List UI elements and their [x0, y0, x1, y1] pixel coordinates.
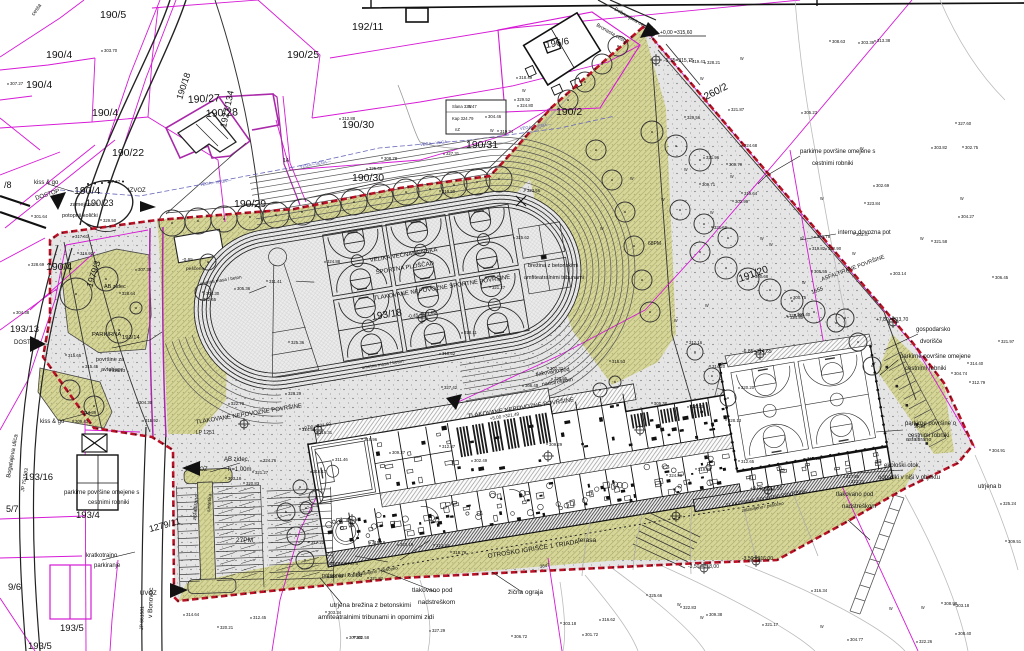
svg-text:190/25: 190/25 — [287, 49, 319, 61]
svg-text:AB zidec: AB zidec — [104, 284, 126, 290]
svg-text:w: w — [700, 615, 704, 621]
svg-text:329.56: 329.56 — [687, 115, 701, 120]
svg-text:315.18: 315.18 — [372, 540, 386, 545]
svg-text:193/14: 193/14 — [122, 335, 141, 341]
svg-text:9/6: 9/6 — [8, 582, 21, 593]
svg-text:312.88: 312.88 — [342, 116, 356, 121]
svg-text:307.38: 307.38 — [138, 267, 152, 272]
svg-text:325.69: 325.69 — [369, 166, 383, 171]
svg-text:321.97: 321.97 — [1001, 339, 1015, 344]
svg-text:303.14: 303.14 — [893, 271, 907, 276]
svg-text:319.34: 319.34 — [500, 129, 514, 134]
svg-text:319.43: 319.43 — [692, 59, 706, 64]
svg-text:-0,65: -0,65 — [182, 257, 193, 263]
svg-text:302.49: 302.49 — [474, 458, 488, 463]
svg-text:tlakovano pod: tlakovano pod — [412, 587, 453, 594]
svg-text:190/31: 190/31 — [466, 139, 498, 151]
svg-text:190/22: 190/22 — [112, 147, 144, 159]
svg-text:parkirne površine omejene: parkirne površine omejene — [900, 354, 971, 360]
svg-text:Kap 324.79: Kap 324.79 — [452, 116, 474, 121]
svg-text:w: w — [710, 210, 714, 216]
svg-text:329.52: 329.52 — [517, 97, 531, 102]
svg-text:utrjena brežina z betonskimi: utrjena brežina z betonskimi — [330, 602, 411, 609]
svg-text:190/2: 190/2 — [556, 106, 582, 118]
svg-text:cestnimi robniki: cestnimi robniki — [88, 500, 129, 506]
svg-text:/8: /8 — [4, 180, 12, 190]
svg-text:304.74: 304.74 — [954, 371, 968, 376]
svg-text:zamejeno s: zamejeno s — [330, 561, 358, 567]
svg-text:w: w — [760, 236, 764, 242]
svg-text:tlakovano pod: tlakovano pod — [836, 492, 873, 498]
svg-text:w: w — [705, 303, 709, 309]
svg-text:318.11: 318.11 — [464, 330, 477, 335]
svg-text:LP 1251: LP 1251 — [196, 430, 215, 436]
svg-text:JP 661581: JP 661581 — [139, 606, 146, 630]
svg-text:w: w — [730, 174, 734, 180]
svg-text:PARKIRNA: PARKIRNA — [92, 332, 121, 338]
svg-text:304.30: 304.30 — [139, 400, 153, 405]
svg-text:+0,00 =315,60: +0,00 =315,60 — [660, 30, 692, 36]
svg-text:peščeno: peščeno — [186, 266, 204, 272]
svg-text:324.88: 324.88 — [327, 259, 341, 264]
svg-text:306.72: 306.72 — [514, 634, 528, 639]
svg-text:308.40: 308.40 — [958, 631, 972, 636]
svg-text:325.62: 325.62 — [516, 235, 530, 240]
svg-text:328.69: 328.69 — [31, 262, 45, 267]
svg-text:314.39: 314.39 — [83, 410, 97, 415]
svg-text:312.45: 312.45 — [253, 615, 267, 620]
svg-text:w: w — [600, 226, 604, 232]
svg-text:-6,85=314,65: -6,85=314,65 — [742, 349, 772, 355]
svg-text:žična ograja: žična ograja — [508, 589, 543, 596]
svg-text:kiss & go: kiss & go — [34, 180, 59, 186]
svg-text:302.58: 302.58 — [356, 635, 370, 640]
svg-text:319.96: 319.96 — [364, 437, 378, 442]
svg-text:303.47: 303.47 — [856, 232, 870, 237]
svg-text:324.68: 324.68 — [744, 143, 758, 148]
svg-text:327.42: 327.42 — [444, 385, 458, 390]
svg-text:192/11: 192/11 — [352, 21, 383, 33]
svg-text:305.23: 305.23 — [804, 110, 818, 115]
svg-text:307.67: 307.67 — [107, 179, 121, 184]
svg-text:304.38: 304.38 — [16, 310, 30, 315]
svg-text:316.31: 316.31 — [319, 430, 333, 435]
svg-text:+7,80 =313,70: +7,80 =313,70 — [876, 317, 908, 323]
svg-text:gospodarsko: gospodarsko — [916, 327, 951, 333]
svg-text:300.75: 300.75 — [793, 295, 807, 300]
svg-text:+0,00 =313,50: +0,00 =313,50 — [750, 486, 782, 492]
svg-text:308.63: 308.63 — [832, 39, 846, 44]
svg-text:cestnimi robniki: cestnimi robniki — [812, 161, 853, 167]
svg-text:321.27: 321.27 — [492, 285, 506, 290]
svg-text:306.45: 306.45 — [995, 275, 1009, 280]
svg-text:asfaltirano: asfaltirano — [906, 437, 931, 443]
svg-text:utrjena b: utrjena b — [978, 484, 1002, 490]
svg-text:318.79: 318.79 — [453, 550, 467, 555]
svg-text:315.33: 315.33 — [807, 456, 821, 461]
svg-text:302.90: 302.90 — [828, 246, 842, 251]
svg-text:321.17: 321.17 — [765, 622, 779, 627]
svg-text:322.83: 322.83 — [683, 605, 697, 610]
svg-text:314.64: 314.64 — [186, 612, 200, 617]
svg-text:parkirne površine o: parkirne površine o — [905, 421, 957, 427]
svg-text:322.26: 322.26 — [919, 639, 933, 644]
svg-text:301.72: 301.72 — [585, 632, 599, 637]
svg-text:brežina z betonskimi: brežina z betonskimi — [528, 263, 578, 269]
svg-text:302.32: 302.32 — [550, 366, 564, 371]
svg-text:amfiteatralnimi tribunami in o: amfiteatralnimi tribunami in opornimi zi… — [318, 614, 434, 621]
svg-text:324.88: 324.88 — [669, 473, 683, 478]
svg-text:303.18: 303.18 — [956, 603, 970, 608]
svg-text:w: w — [820, 196, 824, 202]
svg-text:306.45: 306.45 — [525, 383, 539, 388]
svg-text:w: w — [921, 605, 925, 611]
svg-text:316.90: 316.90 — [80, 251, 94, 256]
svg-text:kratkotrajno: kratkotrajno — [86, 553, 118, 559]
svg-text:68PM: 68PM — [648, 241, 661, 247]
svg-text:311.46: 311.46 — [335, 457, 348, 462]
svg-text:323.84: 323.84 — [867, 201, 881, 206]
svg-text:nadstreškom: nadstreškom — [418, 599, 455, 606]
svg-text:h=1,00m: h=1,00m — [228, 467, 252, 473]
svg-text:DOSTOP: DOSTOP — [14, 340, 39, 346]
svg-text:w: w — [677, 602, 681, 608]
svg-text:305.36: 305.36 — [237, 286, 251, 291]
svg-text:1A: 1A — [283, 158, 290, 164]
svg-text:w: w — [820, 624, 824, 630]
svg-text:312.16: 312.16 — [689, 340, 703, 345]
svg-text:314.59: 314.59 — [302, 427, 316, 432]
svg-text:27PM: 27PM — [236, 537, 253, 544]
svg-text:305.55: 305.55 — [814, 269, 828, 274]
svg-text:316.34: 316.34 — [814, 588, 828, 593]
svg-text:190/5: 190/5 — [100, 9, 126, 21]
svg-text:318.49: 318.49 — [519, 75, 533, 80]
svg-text:303.70: 303.70 — [104, 48, 118, 53]
svg-text:190/4: 190/4 — [92, 107, 118, 119]
svg-text:kiss & go: kiss & go — [40, 419, 65, 425]
svg-text:w: w — [920, 236, 924, 242]
svg-text:328.29: 328.29 — [288, 391, 302, 396]
svg-text:309.29: 309.29 — [549, 442, 563, 447]
svg-text:329.50: 329.50 — [103, 218, 117, 223]
svg-text:5/7: 5/7 — [6, 504, 19, 514]
svg-text:303.18: 303.18 — [228, 476, 242, 481]
svg-text:303.39: 303.39 — [861, 40, 875, 45]
svg-text:301.64: 301.64 — [34, 214, 48, 219]
svg-text:311.41: 311.41 — [269, 279, 282, 284]
svg-text:312.87: 312.87 — [442, 444, 456, 449]
svg-text:w: w — [674, 318, 678, 324]
svg-text:w: w — [960, 196, 964, 202]
svg-text:324.76: 324.76 — [263, 458, 277, 463]
svg-text:190/29: 190/29 — [234, 198, 266, 210]
svg-text:309.43: 309.43 — [75, 419, 89, 424]
svg-text:w: w — [875, 299, 879, 305]
svg-text:317.23: 317.23 — [311, 540, 325, 545]
svg-text:parkirne površine omejene s: parkirne površine omejene s — [800, 149, 875, 155]
svg-text:302.75: 302.75 — [965, 145, 979, 150]
svg-text:površine za: površine za — [96, 357, 125, 363]
svg-text:320.13: 320.13 — [690, 404, 704, 409]
svg-text:322.65: 322.65 — [203, 297, 217, 302]
svg-text:315.65: 315.65 — [68, 353, 82, 358]
svg-text:327.60: 327.60 — [958, 121, 972, 126]
svg-text:319.64: 319.64 — [744, 191, 758, 196]
svg-text:190/30: 190/30 — [352, 172, 384, 184]
svg-text:319.88: 319.88 — [698, 467, 712, 472]
svg-text:309.38: 309.38 — [709, 612, 723, 617]
svg-text:9PM: 9PM — [914, 424, 926, 430]
svg-text:w: w — [700, 76, 704, 82]
svg-text:317.61: 317.61 — [75, 234, 89, 239]
svg-text:301.99: 301.99 — [330, 574, 344, 579]
svg-text:325.66: 325.66 — [649, 593, 663, 598]
svg-text:193/13: 193/13 — [10, 324, 39, 335]
svg-text:w: w — [852, 251, 856, 257]
svg-text:321.82: 321.82 — [370, 576, 384, 581]
svg-text:301.78: 301.78 — [817, 234, 831, 239]
svg-text:324.80: 324.80 — [520, 103, 534, 108]
svg-text:320.95: 320.95 — [554, 376, 568, 381]
svg-text:304.46: 304.46 — [488, 114, 502, 119]
svg-text:v Bonovec: v Bonovec — [147, 587, 155, 618]
svg-text:327.29: 327.29 — [432, 628, 446, 633]
svg-text:328.13: 328.13 — [728, 418, 742, 423]
svg-text:w: w — [860, 146, 864, 152]
svg-text:316.17: 316.17 — [313, 469, 327, 474]
svg-text:320.20: 320.20 — [741, 385, 755, 390]
svg-text:cestnimi robniki: cestnimi robniki — [905, 366, 946, 372]
svg-text:w: w — [661, 197, 665, 203]
svg-text:309.37: 309.37 — [392, 450, 406, 455]
svg-text:321.87: 321.87 — [731, 107, 745, 112]
svg-text:312.65: 312.65 — [741, 459, 755, 464]
svg-text:190/4: 190/4 — [46, 261, 72, 273]
svg-text:300.68: 300.68 — [755, 274, 769, 279]
svg-text:313.44: 313.44 — [436, 543, 450, 548]
svg-text:190/4: 190/4 — [74, 185, 100, 197]
svg-text:302.99: 302.99 — [735, 199, 749, 204]
svg-text:193/5: 193/5 — [60, 623, 84, 634]
svg-text:w: w — [522, 88, 526, 94]
svg-text:309.79: 309.79 — [729, 162, 743, 167]
svg-text:193/4: 193/4 — [76, 510, 100, 521]
svg-text:321.59: 321.59 — [714, 225, 728, 230]
svg-text:IZVOZ: IZVOZ — [128, 188, 146, 194]
svg-text:315.45: 315.45 — [85, 364, 99, 369]
svg-text:320.21: 320.21 — [220, 625, 234, 630]
svg-text:w: w — [889, 606, 893, 612]
svg-text:322.79: 322.79 — [231, 401, 245, 406]
svg-text:323.56: 323.56 — [527, 188, 541, 193]
svg-text:w: w — [630, 176, 634, 182]
svg-text:303.82: 303.82 — [934, 145, 948, 150]
svg-text:315.92: 315.92 — [145, 418, 159, 423]
svg-text:w: w — [490, 128, 494, 134]
svg-text:313.38: 313.38 — [877, 38, 891, 43]
svg-text:328.21: 328.21 — [707, 60, 721, 65]
svg-text:zamejeno s: zamejeno s — [70, 202, 98, 208]
svg-text:309.51: 309.51 — [1008, 539, 1022, 544]
svg-text:190/4: 190/4 — [46, 49, 72, 61]
svg-text:315.53: 315.53 — [612, 359, 626, 364]
svg-text:nadstreškom: nadstreškom — [842, 504, 876, 510]
svg-text:321.58: 321.58 — [934, 239, 948, 244]
svg-text:308.78: 308.78 — [384, 156, 398, 161]
svg-text:305.40: 305.40 — [797, 312, 811, 317]
svg-text:AB zidec,: AB zidec, — [224, 457, 250, 463]
svg-text:323.19: 323.19 — [400, 542, 414, 547]
svg-text:319.82: 319.82 — [812, 246, 826, 251]
svg-text:316.62: 316.62 — [602, 617, 616, 622]
svg-text:309.71: 309.71 — [702, 182, 716, 187]
svg-text:305.38: 305.38 — [654, 401, 668, 406]
svg-text:w: w — [468, 104, 472, 110]
svg-text:w: w — [769, 242, 773, 248]
svg-text:307.27: 307.27 — [10, 81, 24, 86]
svg-text:304.30: 304.30 — [206, 291, 220, 296]
svg-text:321.27: 321.27 — [255, 470, 269, 475]
svg-text:-3,50 =316,00: -3,50 =316,00 — [742, 556, 773, 562]
svg-text:303.34: 303.34 — [328, 610, 342, 615]
svg-text:odpadki v niši v objektu: odpadki v niši v objektu — [878, 475, 940, 481]
svg-text:314.20: 314.20 — [712, 364, 726, 369]
svg-text:potopnii količki: potopnii količki — [62, 213, 98, 219]
svg-text:190/4: 190/4 — [26, 79, 52, 91]
svg-text:318.62: 318.62 — [442, 351, 456, 356]
svg-text:320.83: 320.83 — [246, 481, 260, 486]
svg-text:304.91: 304.91 — [992, 448, 1006, 453]
svg-text:w: w — [802, 280, 806, 286]
svg-text:327.31: 327.31 — [446, 151, 460, 156]
svg-text:193/5: 193/5 — [28, 641, 52, 651]
svg-text:303.18: 303.18 — [563, 621, 577, 626]
svg-text:w: w — [684, 167, 688, 173]
svg-text:313.21: 313.21 — [851, 479, 865, 484]
svg-text:325.24: 325.24 — [1003, 501, 1017, 506]
svg-text:312.79: 312.79 — [972, 380, 986, 385]
svg-text:IZVOZ: IZVOZ — [190, 467, 208, 473]
svg-text:304.27: 304.27 — [961, 214, 975, 219]
svg-text:302.69: 302.69 — [876, 183, 890, 188]
svg-text:nZ: nZ — [455, 127, 460, 132]
svg-text:325.36: 325.36 — [291, 340, 305, 345]
svg-text:190/27: 190/27 — [188, 92, 221, 106]
svg-text:314.40: 314.40 — [970, 361, 984, 366]
svg-text:amfiteatralnimi tribunami: amfiteatralnimi tribunami — [524, 275, 584, 281]
svg-text:Slana 328.47: Slana 328.47 — [452, 104, 477, 109]
svg-text:319.50: 319.50 — [442, 189, 456, 194]
svg-text:parkiranje: parkiranje — [94, 563, 121, 569]
svg-text:-3,50 =318,00: -3,50 =318,00 — [688, 564, 719, 570]
svg-text:dvorišče: dvorišče — [920, 339, 943, 345]
svg-text:w: w — [800, 236, 804, 242]
svg-text:terasa: terasa — [578, 537, 596, 544]
svg-text:328.64: 328.64 — [122, 291, 136, 296]
svg-text:ekološki otok,: ekološki otok, — [884, 463, 921, 469]
svg-text:304.77: 304.77 — [850, 637, 864, 642]
svg-text:w: w — [740, 56, 744, 62]
svg-text:parkirne površine omejene s: parkirne površine omejene s — [64, 490, 139, 496]
svg-text:325.13: 325.13 — [112, 368, 126, 373]
svg-text:321.96: 321.96 — [706, 155, 720, 160]
